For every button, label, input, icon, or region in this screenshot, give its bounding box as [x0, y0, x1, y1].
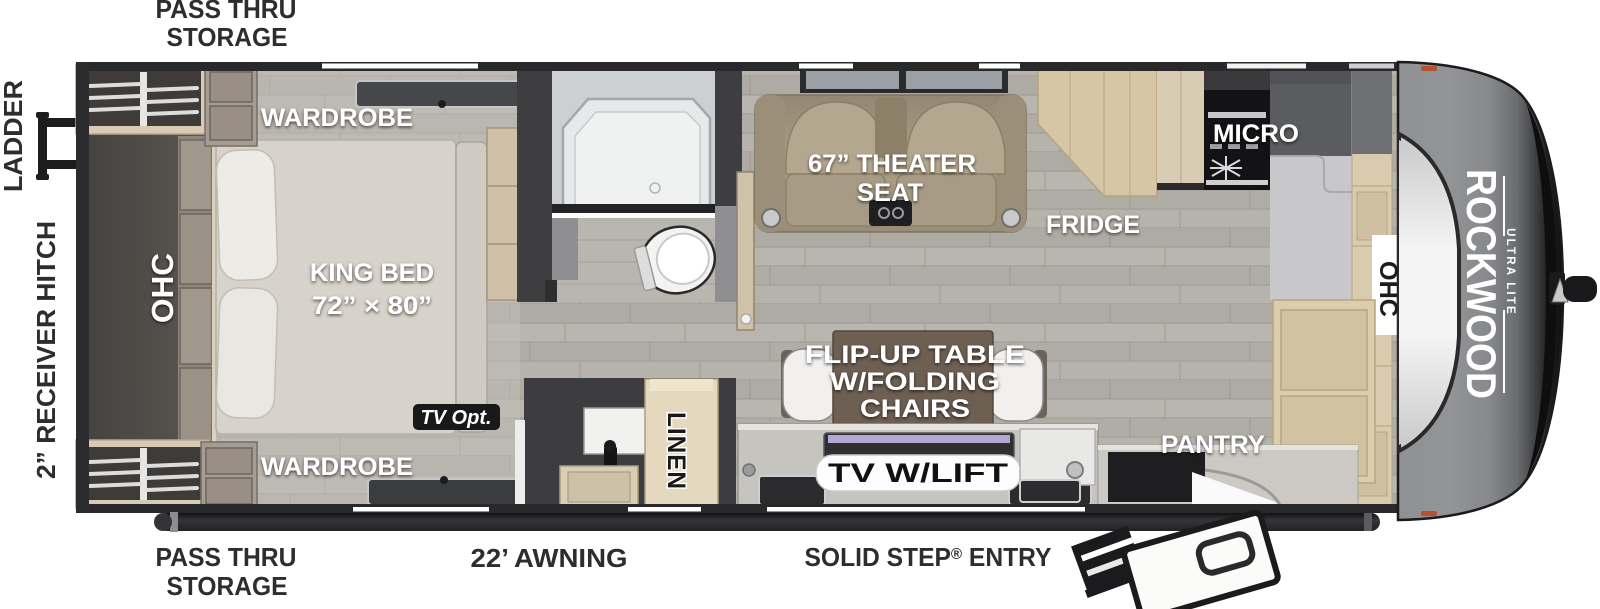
svg-text:ULTRA LITE: ULTRA LITE	[1504, 228, 1516, 316]
svg-text:STORAGE: STORAGE	[167, 22, 288, 52]
svg-text:72” × 80”: 72” × 80”	[312, 292, 432, 320]
svg-text:PANTRY: PANTRY	[1161, 431, 1265, 459]
svg-text:TV Opt.: TV Opt.	[420, 407, 491, 429]
svg-text:ROCKWOOD: ROCKWOOD	[1458, 169, 1505, 399]
svg-text:2” RECEIVER HITCH: 2” RECEIVER HITCH	[31, 221, 61, 479]
svg-text:OHC: OHC	[1374, 261, 1402, 317]
svg-text:SEAT: SEAT	[857, 179, 923, 207]
svg-text:PASS THRU: PASS THRU	[156, 0, 297, 24]
svg-text:CHAIRS: CHAIRS	[860, 395, 970, 423]
svg-text:22’ AWNING: 22’ AWNING	[471, 543, 628, 573]
svg-text:LINEN: LINEN	[662, 412, 690, 490]
svg-text:MICRO: MICRO	[1213, 120, 1299, 148]
svg-text:FRIDGE: FRIDGE	[1046, 211, 1140, 239]
svg-text:WARDROBE: WARDROBE	[261, 104, 413, 132]
svg-text:WARDROBE: WARDROBE	[261, 453, 413, 481]
svg-text:67” THEATER: 67” THEATER	[808, 150, 976, 178]
svg-text:SOLID STEP® ENTRY: SOLID STEP® ENTRY	[805, 542, 1052, 572]
svg-text:KING BED: KING BED	[310, 259, 434, 287]
svg-text:LADDER: LADDER	[0, 80, 28, 192]
svg-text:FLIP-UP TABLE: FLIP-UP TABLE	[805, 341, 1025, 369]
svg-text:TV W/LIFT: TV W/LIFT	[828, 458, 1009, 488]
svg-text:PASS THRU: PASS THRU	[156, 542, 297, 572]
svg-text:STORAGE: STORAGE	[167, 571, 288, 601]
svg-text:W/FOLDING: W/FOLDING	[830, 368, 1000, 396]
svg-text:OHC: OHC	[145, 253, 180, 323]
